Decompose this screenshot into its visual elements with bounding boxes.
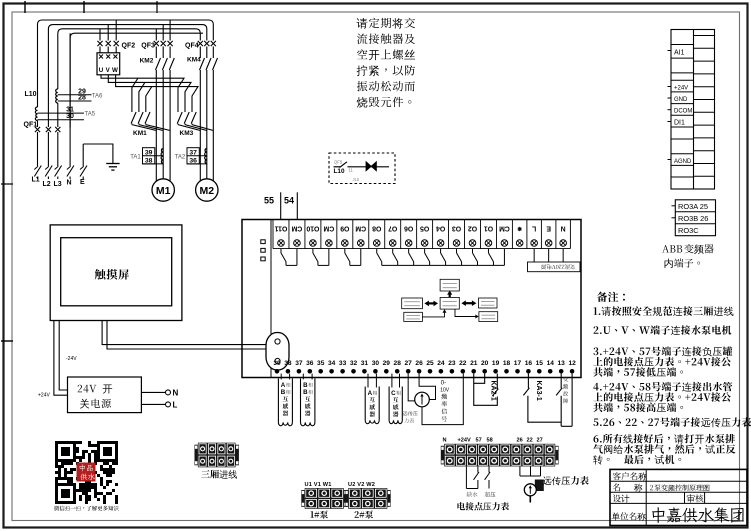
svg-text:27: 27 [537,437,543,443]
svg-text:37: 37 [189,149,197,156]
svg-text:12: 12 [568,360,576,367]
svg-text:GND: GND [674,97,688,103]
svg-text:O6: O6 [404,225,413,232]
svg-text:15: 15 [536,360,544,367]
svg-text:KA3-1: KA3-1 [535,381,542,401]
svg-text:28: 28 [394,360,402,367]
svg-text:L2: L2 [43,181,51,188]
svg-text:34: 34 [328,360,336,367]
svg-text:31: 31 [361,360,369,367]
svg-text:16: 16 [525,360,533,367]
svg-text:DCOM: DCOM [674,109,692,115]
svg-text:CM: CM [499,225,510,232]
svg-text:-24V: -24V [66,356,77,362]
svg-text:+24V: +24V [674,85,688,91]
svg-text:O9: O9 [340,225,349,232]
svg-text:QF5: QF5 [334,160,343,165]
svg-text:14: 14 [547,360,555,367]
svg-text:29: 29 [383,360,391,367]
svg-text:C: C [391,390,396,397]
svg-text:B: B [281,389,286,396]
svg-text:L10: L10 [334,168,345,175]
svg-text:O4: O4 [436,225,445,232]
svg-text:+24V: +24V [458,437,471,443]
svg-text:28: 28 [78,95,86,102]
svg-text:L3: L3 [54,181,62,188]
svg-text:17: 17 [514,360,522,367]
svg-text:U1 V1 W1: U1 V1 W1 [305,482,332,488]
svg-text:DI1: DI1 [674,120,685,127]
svg-text:AGND: AGND [674,159,692,165]
svg-text:TA6: TA6 [92,93,103,99]
svg-text:36: 36 [189,158,197,165]
svg-text:35: 35 [317,360,325,367]
svg-text:O8: O8 [372,225,381,232]
svg-text:U V W: U V W [99,67,118,74]
svg-text:N: N [561,225,566,232]
svg-text:26: 26 [517,437,523,443]
svg-text:TA2: TA2 [175,155,186,161]
svg-text:L: L [173,401,178,410]
svg-text:N: N [173,389,179,398]
svg-text:KM4: KM4 [187,57,201,64]
svg-text:25: 25 [426,360,434,367]
svg-text:QF2: QF2 [122,43,136,50]
svg-text:11: 11 [349,168,354,173]
svg-text:KM3: KM3 [180,130,194,137]
svg-text:10V: 10V [440,388,450,394]
svg-text:+24V: +24V [38,392,50,398]
svg-text:B: B [303,389,308,396]
svg-text:22: 22 [527,437,533,443]
svg-text:QF3: QF3 [141,43,155,50]
svg-text:E: E [546,225,551,232]
svg-text:KM2: KM2 [140,58,154,65]
svg-text:33: 33 [339,360,347,367]
svg-text:RO3A 25: RO3A 25 [678,202,708,211]
svg-text:L1: L1 [32,177,40,184]
svg-text:30: 30 [372,360,380,367]
svg-text:A: A [281,382,286,389]
svg-text:O5: O5 [420,225,429,232]
svg-text:TA5: TA5 [85,112,96,118]
svg-text:38: 38 [145,158,153,165]
svg-text:O11: O11 [274,225,287,232]
svg-text:A: A [368,390,373,397]
svg-text:B: B [303,382,308,389]
svg-text:O10: O10 [306,225,319,232]
svg-text:38: 38 [284,360,292,367]
svg-text:CM: CM [291,225,302,232]
svg-text:26: 26 [415,360,423,367]
svg-text:JL0: JL0 [353,177,360,182]
svg-text:27: 27 [404,360,412,367]
svg-text:39: 39 [145,149,153,156]
svg-text:O1: O1 [484,225,493,232]
svg-text:TA1: TA1 [130,155,141,161]
svg-text:O7: O7 [388,225,397,232]
svg-text:58: 58 [487,437,493,443]
svg-text:36: 36 [306,360,314,367]
svg-text:19: 19 [492,360,500,367]
svg-text:M2: M2 [200,185,215,197]
svg-text:23: 23 [448,360,456,367]
svg-text:KA2-1: KA2-1 [490,381,497,401]
svg-text:24: 24 [437,360,445,367]
svg-text:21: 21 [470,360,478,367]
svg-text:N: N [443,437,447,443]
svg-text:22: 22 [459,360,467,367]
svg-text:U2 V2 W2: U2 V2 W2 [348,482,375,488]
svg-text:O2: O2 [468,225,477,232]
svg-text:E: E [80,179,85,186]
svg-text:O3: O3 [452,225,461,232]
svg-text:L: L [532,225,536,232]
svg-text:N: N [67,180,72,187]
svg-text:54: 54 [284,196,294,206]
svg-text:RO3B 26: RO3B 26 [678,214,708,223]
svg-text:55: 55 [264,196,274,206]
svg-text:AI1: AI1 [674,50,685,57]
svg-text:CM: CM [323,225,334,232]
svg-text:QF4: QF4 [185,43,199,50]
svg-text:13: 13 [558,360,566,367]
svg-text:39: 39 [273,360,281,367]
svg-text:0-: 0- [441,381,446,387]
svg-text:18: 18 [503,360,511,367]
svg-text:RO3C: RO3C [678,226,699,235]
svg-text:32: 32 [350,360,358,367]
svg-text:CM: CM [355,225,366,232]
svg-text:KM1: KM1 [133,130,147,137]
svg-text:57: 57 [476,437,482,443]
svg-text:M1: M1 [156,185,171,197]
svg-text:37: 37 [295,360,303,367]
svg-text:20: 20 [481,360,489,367]
svg-text:L10: L10 [25,91,37,98]
